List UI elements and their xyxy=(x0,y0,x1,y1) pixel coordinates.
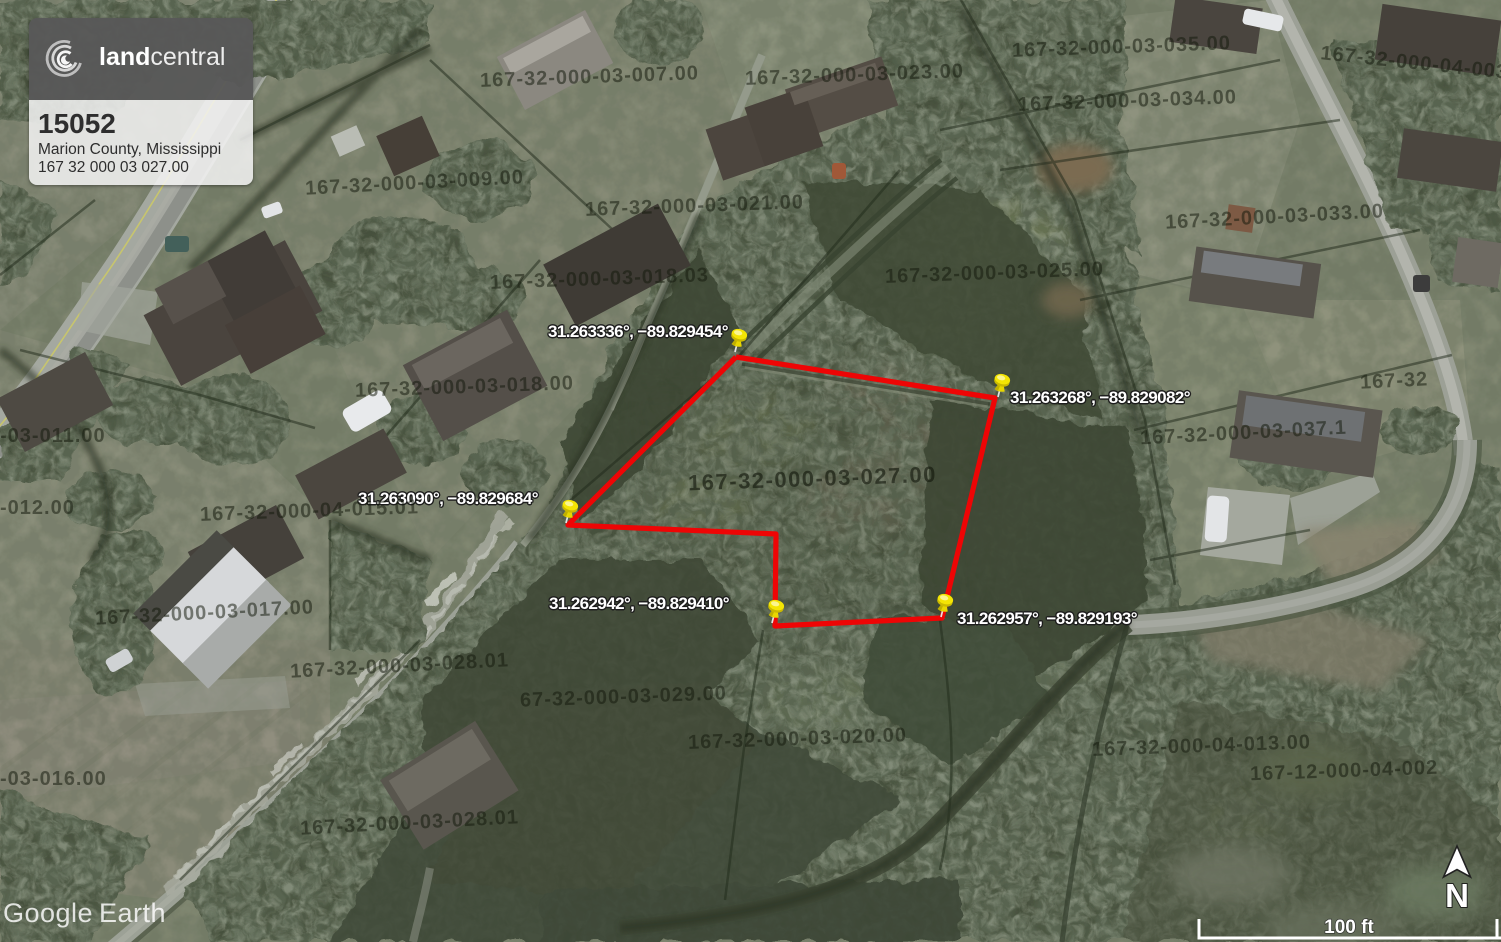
svg-text:100 ft: 100 ft xyxy=(1324,917,1374,938)
